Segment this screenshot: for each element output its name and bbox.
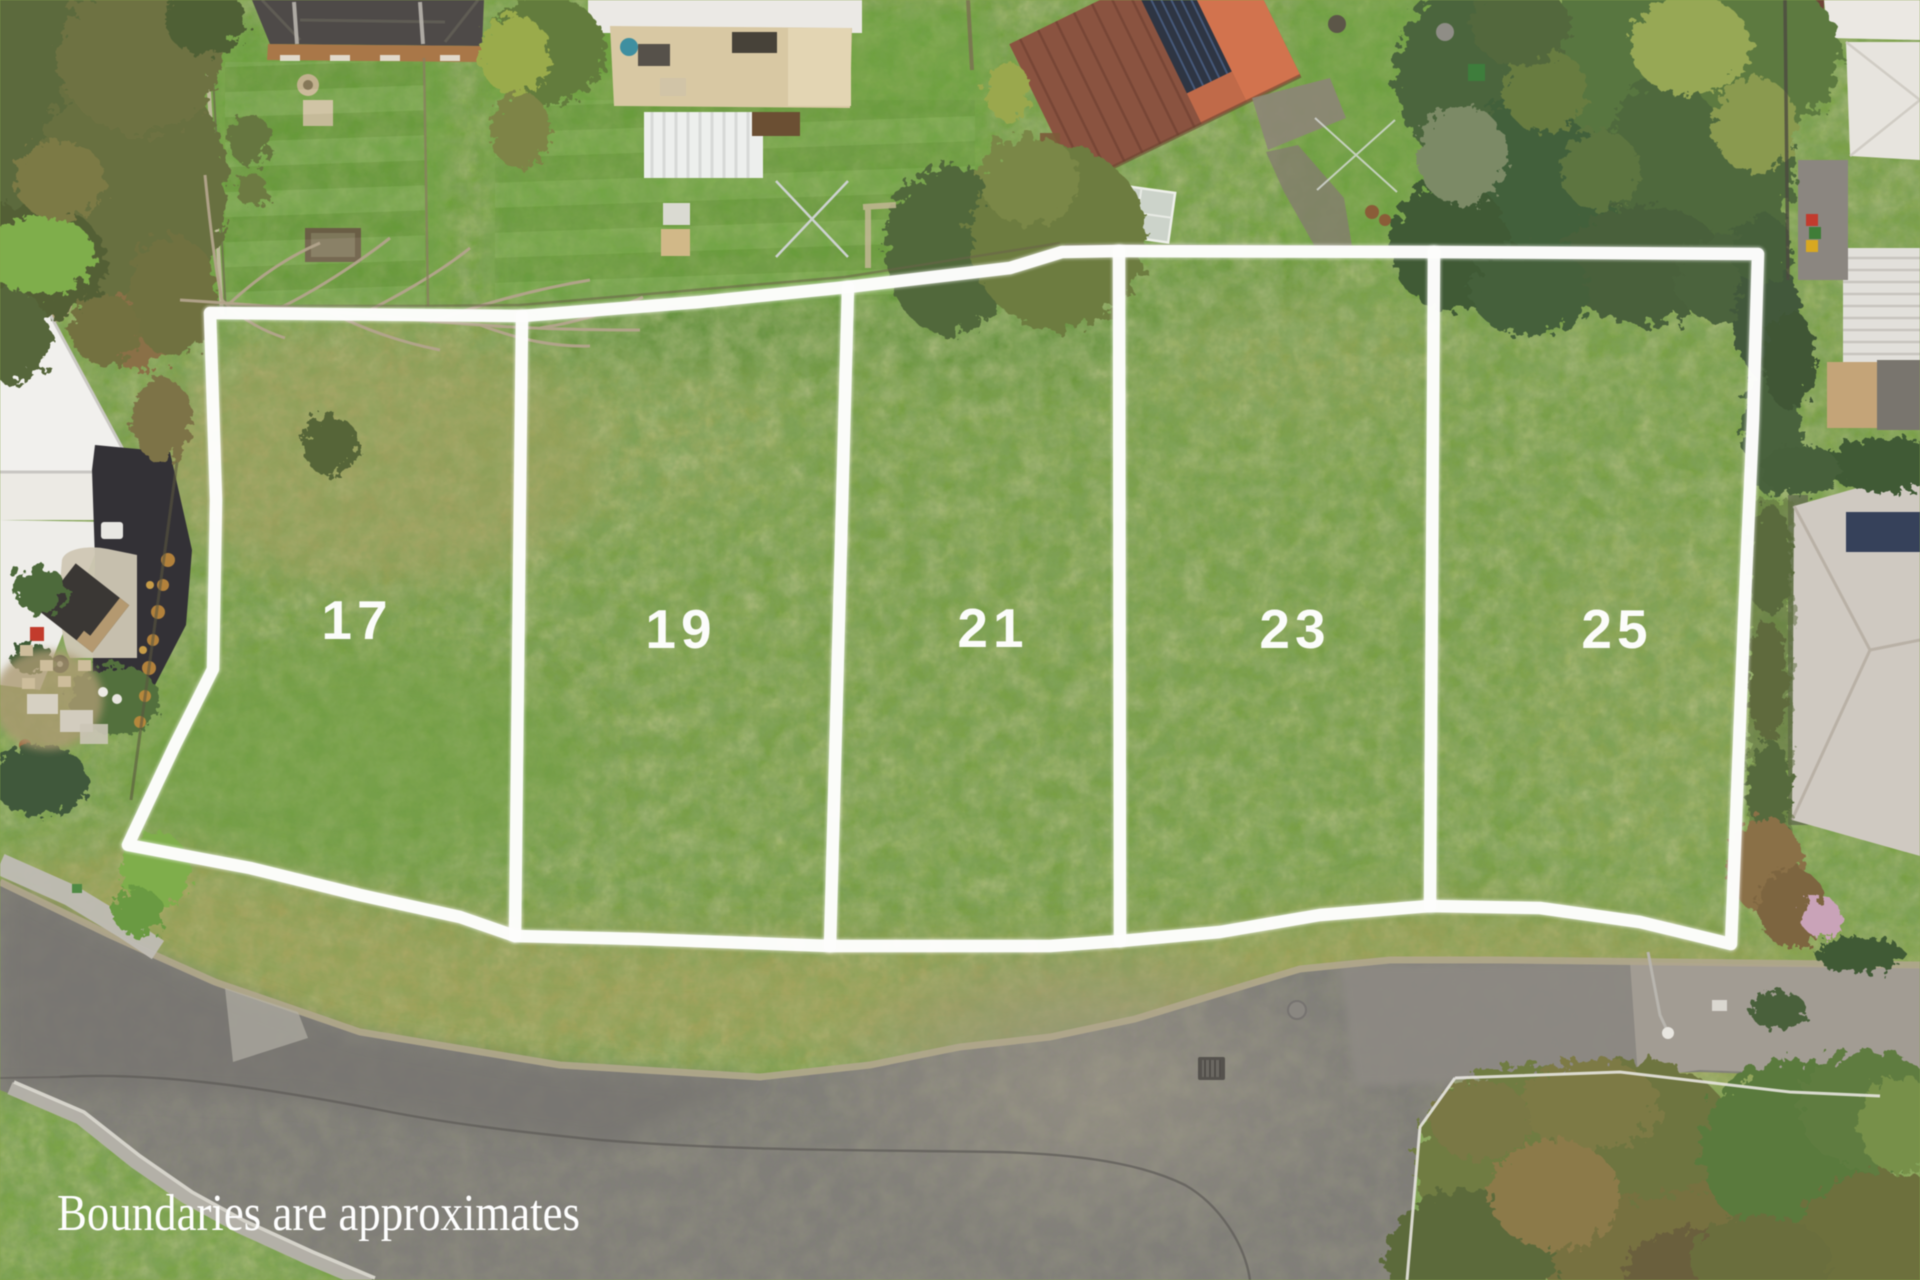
svg-text:17: 17 xyxy=(321,589,392,651)
svg-text:19: 19 xyxy=(645,598,716,660)
svg-text:Boundaries are approximates: Boundaries are approximates xyxy=(57,1185,580,1242)
svg-text:21: 21 xyxy=(957,597,1028,659)
svg-text:25: 25 xyxy=(1581,598,1652,660)
svg-text:23: 23 xyxy=(1259,598,1330,660)
